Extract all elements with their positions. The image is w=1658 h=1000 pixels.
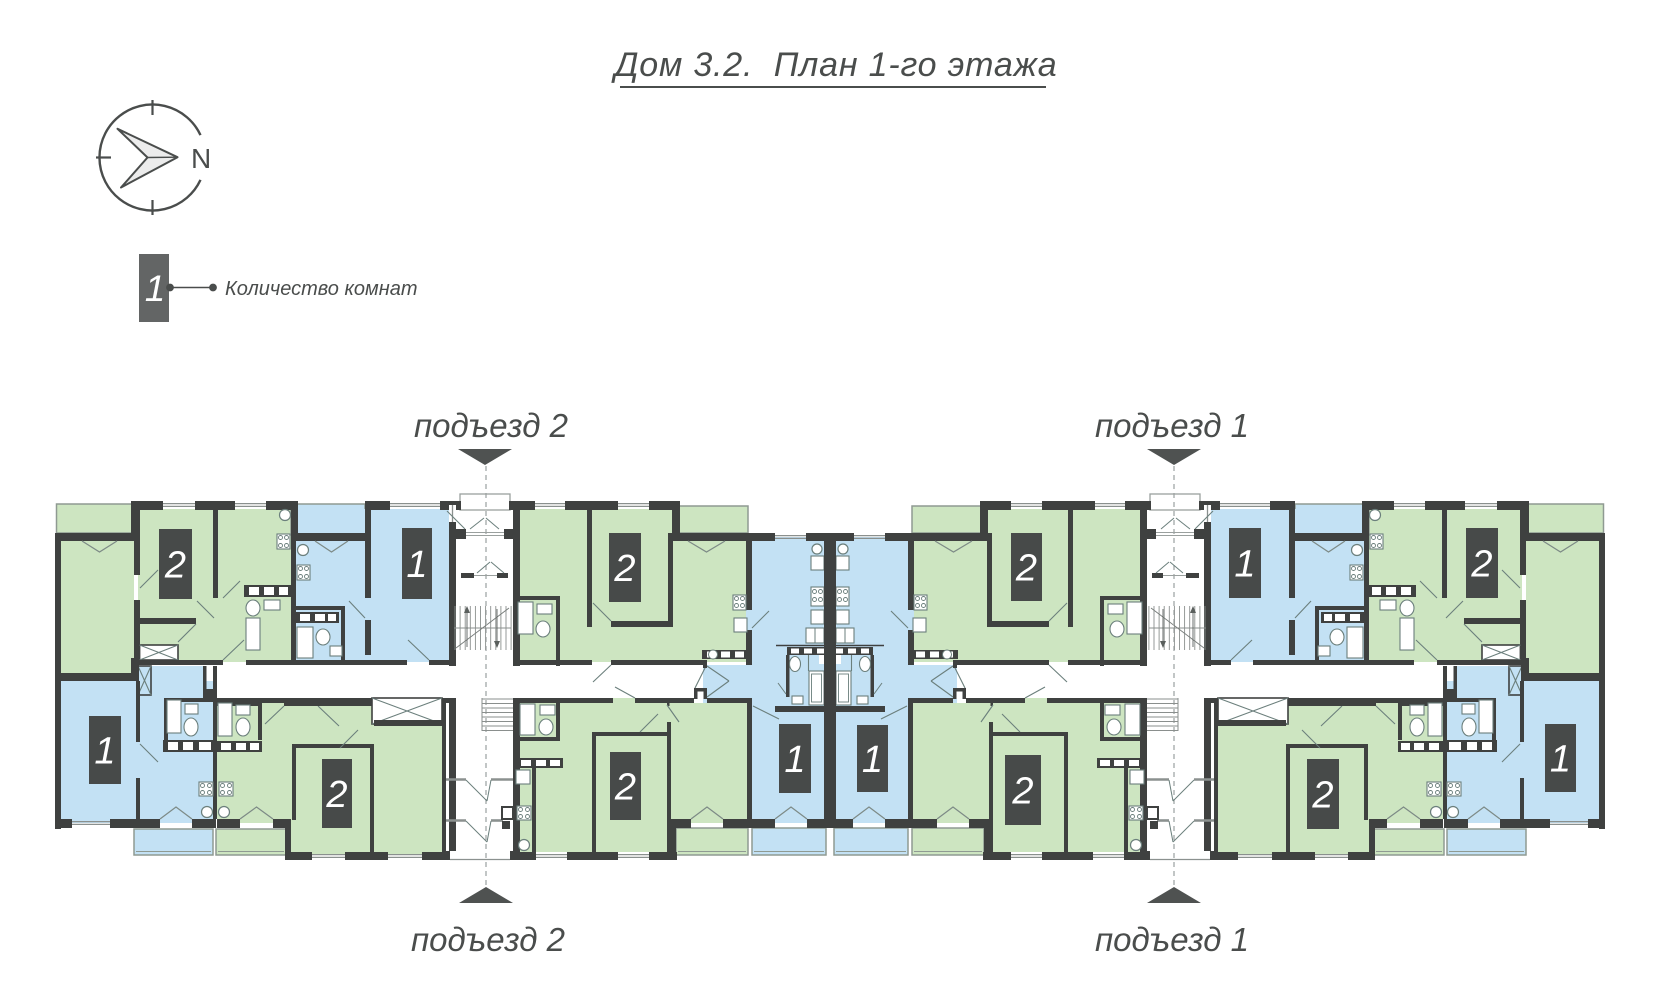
svg-text:подъезд 1: подъезд 1 <box>1095 407 1249 444</box>
svg-text:Дом 3.2. План 1-го этажа: Дом 3.2. План 1-го этажа <box>611 46 1058 84</box>
svg-text:Количество комнат: Количество комнат <box>225 278 418 300</box>
svg-text:1: 1 <box>94 731 115 773</box>
svg-text:2: 2 <box>164 545 186 587</box>
svg-text:подъезд 1: подъезд 1 <box>1095 921 1249 958</box>
svg-text:подъезд 2: подъезд 2 <box>414 407 568 444</box>
svg-text:2: 2 <box>614 767 636 809</box>
svg-text:2: 2 <box>1015 548 1037 590</box>
svg-text:1: 1 <box>406 544 427 586</box>
svg-text:2: 2 <box>325 774 347 816</box>
svg-text:1: 1 <box>862 739 883 781</box>
svg-text:1: 1 <box>784 739 805 781</box>
svg-text:2: 2 <box>1470 544 1492 586</box>
svg-text:1: 1 <box>145 268 166 309</box>
svg-text:1: 1 <box>1550 739 1571 781</box>
svg-text:N: N <box>191 143 211 174</box>
svg-text:2: 2 <box>1011 771 1033 813</box>
svg-text:1: 1 <box>1234 544 1255 586</box>
svg-text:2: 2 <box>613 548 635 590</box>
svg-text:2: 2 <box>1311 775 1333 817</box>
svg-text:подъезд 2: подъезд 2 <box>411 921 565 958</box>
